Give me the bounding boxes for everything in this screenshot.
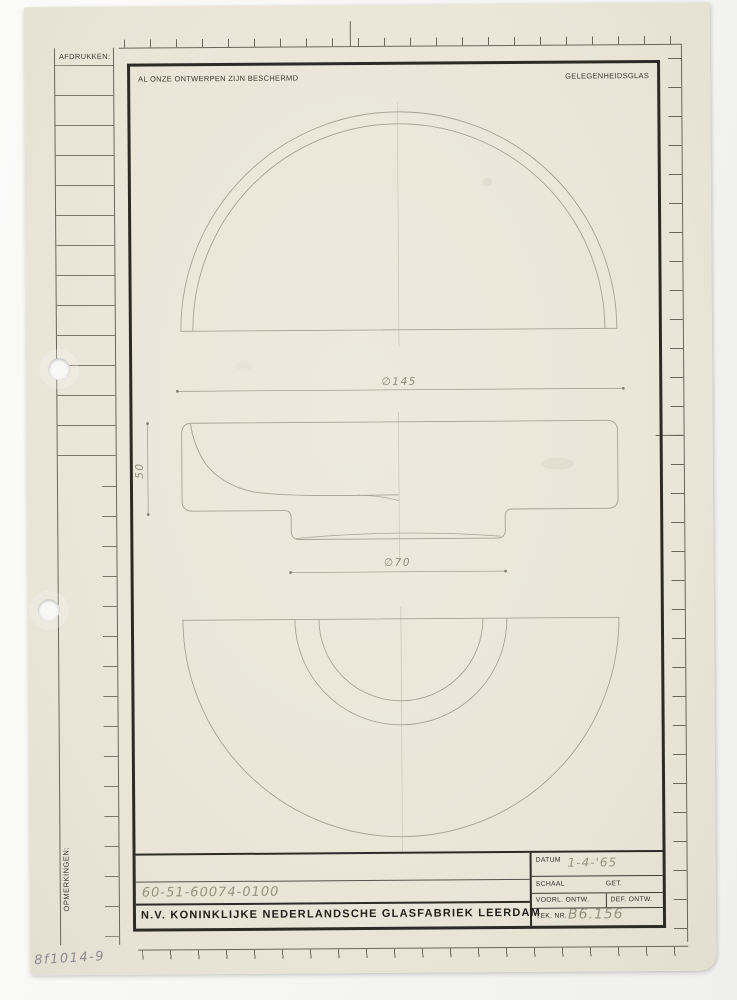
column-tick-marks [102, 486, 119, 937]
drawing-sheet: AFDRUKKEN: OPMERKINGEN: AL ONZE ONTWERPE… [24, 3, 717, 976]
handwritten-corner-note: 8f1014-9 [34, 949, 106, 968]
title-block-empty-row [136, 853, 530, 883]
tek-nr-row: TEK. NR. B6.156 [532, 908, 663, 924]
product-number: 60-51-60074-0100 [136, 880, 530, 906]
pencil-drawing: ∅145 50 ∅70 [130, 63, 662, 856]
top-center-tick [350, 21, 351, 46]
tek-nr-value: B6.156 [568, 906, 624, 922]
dim-foot-diameter: ∅70 [384, 557, 411, 569]
schaal-row: SCHAAL GET. [532, 876, 663, 894]
datum-row: DATUM 1-4-'65 [532, 852, 663, 877]
dimension-lines [146, 387, 626, 575]
datum-value: 1-4-'65 [568, 855, 618, 869]
opmerkingen-label: OPMERKINGEN: [61, 847, 70, 911]
paper-smudges [234, 178, 574, 472]
centerlines [396, 103, 402, 852]
dim-top-diameter: ∅145 [382, 376, 417, 388]
company-name: N.V. KONINKLIJKE NEDERLANDSCHE GLASFABRI… [136, 903, 530, 926]
tek-nr-label: TEK. NR. [532, 909, 567, 924]
punch-hole-bottom [38, 599, 60, 621]
drawing-frame: AL ONZE ONTWERPEN ZIJN BESCHERMD GELEGEN… [127, 60, 666, 932]
def-ontw-label: DEF. ONTW. [606, 893, 662, 907]
title-block-left: 60-51-60074-0100 N.V. KONINKLIJKE NEDERL… [136, 853, 532, 929]
punch-hole-top [48, 358, 70, 380]
schaal-label: SCHAAL [532, 877, 565, 893]
dim-height: 50 [134, 462, 146, 478]
section-view [182, 420, 619, 540]
get-label: GET. [602, 876, 622, 892]
title-block-right: DATUM 1-4-'65 SCHAAL GET. VOORL. ONTW. D… [532, 852, 664, 926]
column-ruled-lines [55, 65, 116, 460]
print-record-column: AFDRUKKEN: OPMERKINGEN: [54, 48, 120, 945]
scanner-background: AFDRUKKEN: OPMERKINGEN: AL ONZE ONTWERPE… [0, 0, 737, 1000]
dimension-labels: ∅145 50 ∅70 [133, 376, 418, 571]
afdrukken-label: AFDRUKKEN: [59, 52, 110, 61]
title-block: 60-51-60074-0100 N.V. KONINKLIJKE NEDERL… [136, 850, 664, 929]
datum-label: DATUM [532, 853, 561, 866]
